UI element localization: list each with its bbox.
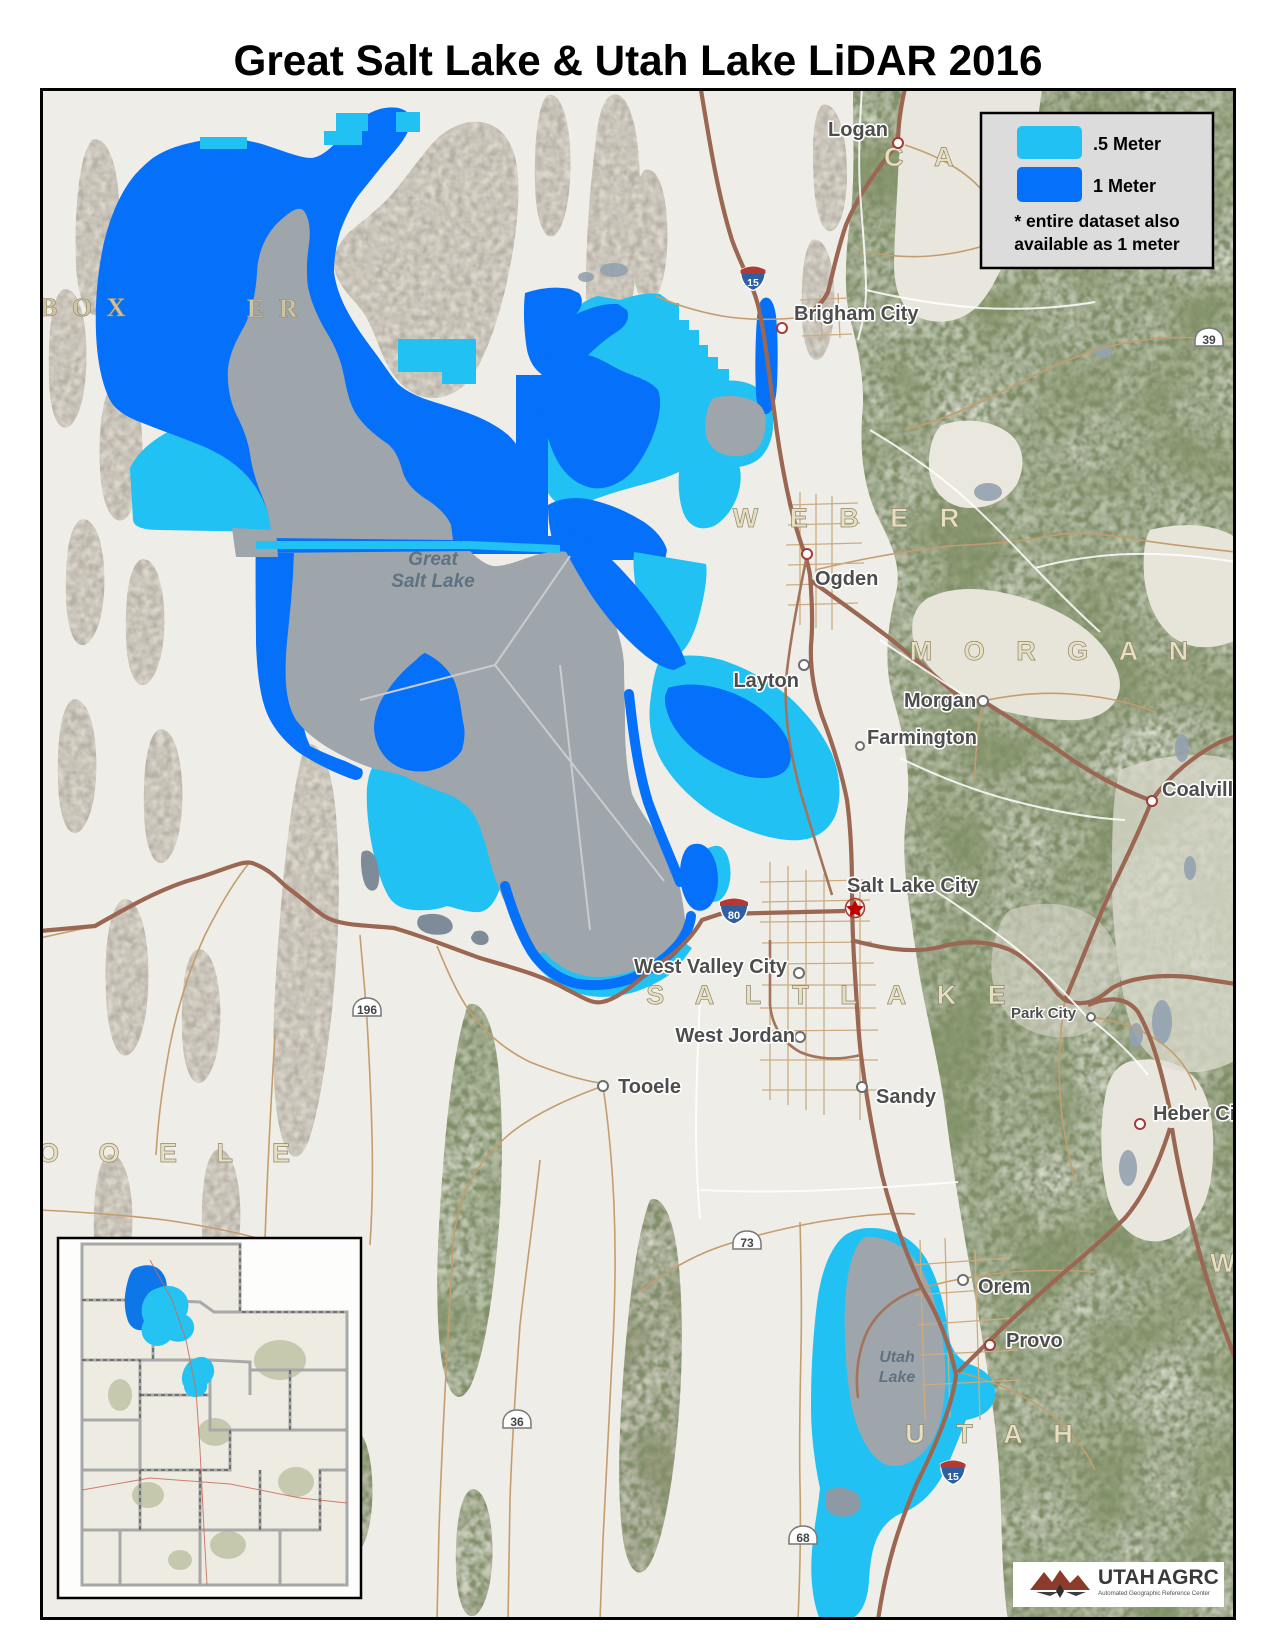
svg-text:1 Meter: 1 Meter [1093, 176, 1156, 196]
svg-text:W E B E R: W E B E R [733, 503, 972, 533]
svg-text:Sandy: Sandy [876, 1086, 937, 1108]
svg-text:Ogden: Ogden [815, 568, 878, 590]
svg-text:Utah: Utah [879, 1349, 915, 1366]
svg-text:Coalville: Coalville [1162, 779, 1244, 801]
svg-text:Salt Lake City: Salt Lake City [847, 875, 979, 897]
svg-text:O O E L E: O O E L E [38, 1138, 306, 1168]
svg-text:B O X: B O X [40, 293, 129, 322]
svg-text:Provo: Provo [1006, 1330, 1063, 1352]
svg-text:Lake: Lake [879, 1369, 916, 1386]
svg-text:West Jordan: West Jordan [675, 1025, 795, 1047]
svg-text:U T A H: U T A H [905, 1419, 1085, 1449]
svg-text:196: 196 [357, 1003, 377, 1017]
svg-text:Tooele: Tooele [618, 1076, 681, 1098]
svg-text:Great: Great [408, 549, 458, 570]
svg-text:Morgan: Morgan [904, 690, 976, 712]
svg-text:39: 39 [1202, 333, 1216, 347]
svg-text:M O R G A N: M O R G A N [910, 636, 1201, 666]
svg-text:80: 80 [728, 910, 740, 922]
svg-text:Farmington: Farmington [867, 727, 977, 749]
svg-text:Layton: Layton [733, 670, 799, 692]
svg-text:Park City: Park City [1011, 1005, 1077, 1022]
svg-text:AGRC: AGRC [1157, 1566, 1219, 1589]
svg-text:68: 68 [796, 1531, 810, 1545]
svg-text:* entire dataset also: * entire dataset also [1014, 211, 1179, 231]
svg-text:36: 36 [510, 1415, 524, 1429]
svg-text:West Valley City: West Valley City [634, 956, 788, 978]
svg-text:UTAH: UTAH [1098, 1566, 1155, 1589]
svg-text:Logan: Logan [828, 119, 888, 141]
svg-text:15: 15 [947, 1471, 959, 1483]
svg-text:73: 73 [740, 1236, 754, 1250]
svg-text:Brigham City: Brigham City [794, 303, 919, 325]
svg-text:Great Salt Lake & Utah Lake Li: Great Salt Lake & Utah Lake LiDAR 2016 [234, 37, 1043, 84]
svg-text:S A L T L A K E: S A L T L A K E [646, 980, 1018, 1010]
svg-text:Orem: Orem [978, 1276, 1030, 1298]
svg-text:15: 15 [747, 277, 759, 289]
svg-text:E R: E R [247, 294, 302, 323]
svg-text:Automated Geographic Reference: Automated Geographic Reference Center [1098, 1590, 1210, 1597]
svg-text:.5 Meter: .5 Meter [1093, 134, 1161, 154]
svg-text:Salt Lake: Salt Lake [391, 571, 475, 592]
svg-text:available as 1 meter: available as 1 meter [1014, 234, 1180, 254]
